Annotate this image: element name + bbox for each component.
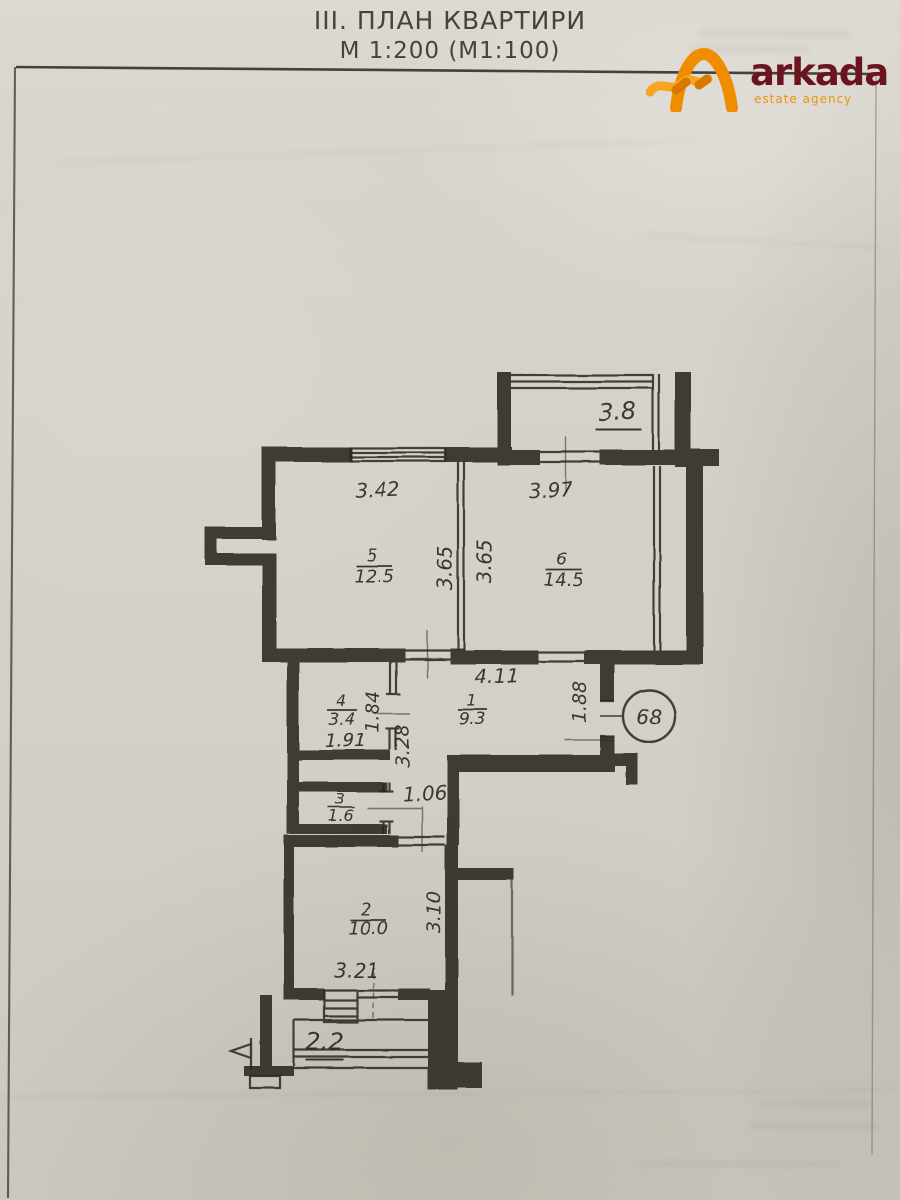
dim-room2-depth: 3.10 <box>423 891 445 933</box>
room-label-6: 6 14.5 <box>544 550 584 591</box>
dim-room6-width: 3.97 <box>528 477 574 503</box>
partition-room5-room6 <box>458 462 464 650</box>
agency-wordmark: arkada <box>750 54 888 91</box>
room-label-3: 3 1.6 <box>328 790 354 825</box>
window-room2 <box>324 990 357 1022</box>
dim-room5-width: 3.42 <box>355 477 400 503</box>
balcony-door-room6 <box>540 452 600 462</box>
plan-labels: 3.42 3.97 3.65 3.65 4.11 1.88 1.84 1.91 … <box>306 397 662 1060</box>
balcony-bottom-area: 2.2 <box>306 1028 344 1056</box>
room-2-area: 10.0 <box>348 918 388 939</box>
dim-corridor-width: 1.06 <box>402 780 448 806</box>
dim-hall-length: 4.11 <box>474 663 519 689</box>
room-2-number: 2 <box>361 900 372 920</box>
room-1-number: 1 <box>467 691 477 710</box>
walls <box>205 372 719 1090</box>
agency-tagline: estate agency <box>754 92 852 106</box>
room-4-number: 4 <box>336 691 346 710</box>
dim-entry-width: 1.88 <box>569 681 591 723</box>
balcony-bottom-label: 2.2 <box>306 1028 344 1060</box>
room-4-area: 3.4 <box>328 710 355 730</box>
dim-room4-width: 1.91 <box>325 730 367 752</box>
balcony-top-window-band <box>511 374 659 450</box>
door-room6 <box>538 652 584 661</box>
entry-door-opening <box>600 701 614 736</box>
agency-logo: arkada estate agency <box>640 38 878 118</box>
survey-flag-mark <box>231 1038 251 1070</box>
threshold-box <box>250 1076 280 1088</box>
room-1-area: 9.3 <box>459 710 486 730</box>
dim-room4-depth: 1.84 <box>362 691 384 733</box>
room-3-area: 1.6 <box>328 806 353 825</box>
dim-corridor-length: 3.28 <box>392 725 414 767</box>
dim-room5-depth: 3.65 <box>433 546 457 591</box>
apartment-number: 68 <box>636 705 661 729</box>
room-5-area: 12.5 <box>354 566 394 587</box>
balcony-top-area: 3.8 <box>598 397 638 427</box>
balcony-door-room2 <box>357 990 398 997</box>
room-label-1: 1 9.3 <box>458 691 488 730</box>
room-6-area: 14.5 <box>544 570 584 591</box>
room-label-4: 4 3.4 <box>327 691 357 730</box>
room-6-number: 6 <box>557 550 568 570</box>
shaft-wall-room6 <box>654 466 660 650</box>
floor-plan-sheet: 3.42 3.97 3.65 3.65 4.11 1.88 1.84 1.91 … <box>0 0 900 1200</box>
arkada-arch-icon <box>646 48 750 112</box>
room-label-2: 2 10.0 <box>348 900 388 939</box>
room-label-5: 5 12.5 <box>354 546 394 587</box>
balcony-top-label: 3.8 <box>596 397 642 430</box>
room-5-number: 5 <box>367 546 378 566</box>
dim-room2-width: 3.21 <box>334 958 379 982</box>
window-room5 <box>350 447 445 462</box>
dim-room6-depth: 3.65 <box>473 540 497 585</box>
